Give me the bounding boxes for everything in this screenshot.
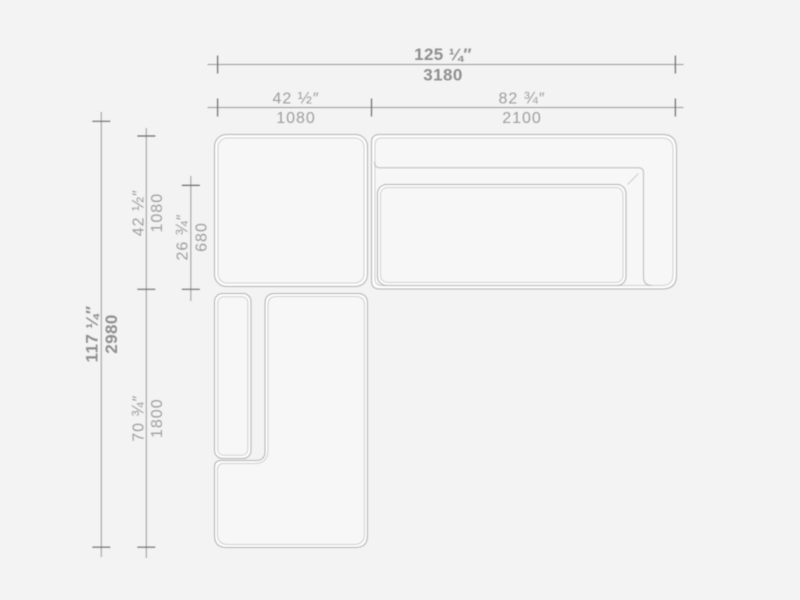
svg-text:125 ¼″: 125 ¼″ [414, 45, 472, 64]
svg-text:3180: 3180 [423, 66, 462, 85]
svg-text:2980: 2980 [102, 314, 121, 353]
svg-text:1800: 1800 [149, 398, 166, 438]
svg-text:26 ¾″: 26 ¾″ [173, 213, 192, 260]
svg-text:117 ¼″: 117 ¼″ [83, 306, 102, 363]
svg-text:2100: 2100 [502, 110, 542, 127]
svg-text:42 ½″: 42 ½″ [129, 189, 148, 236]
svg-text:70 ¾″: 70 ¾″ [129, 395, 148, 442]
svg-text:1080: 1080 [276, 110, 316, 127]
svg-text:82 ¾″: 82 ¾″ [498, 89, 545, 108]
svg-text:42 ½″: 42 ½″ [272, 89, 319, 108]
svg-text:1080: 1080 [149, 193, 166, 233]
svg-text:680: 680 [194, 222, 211, 252]
